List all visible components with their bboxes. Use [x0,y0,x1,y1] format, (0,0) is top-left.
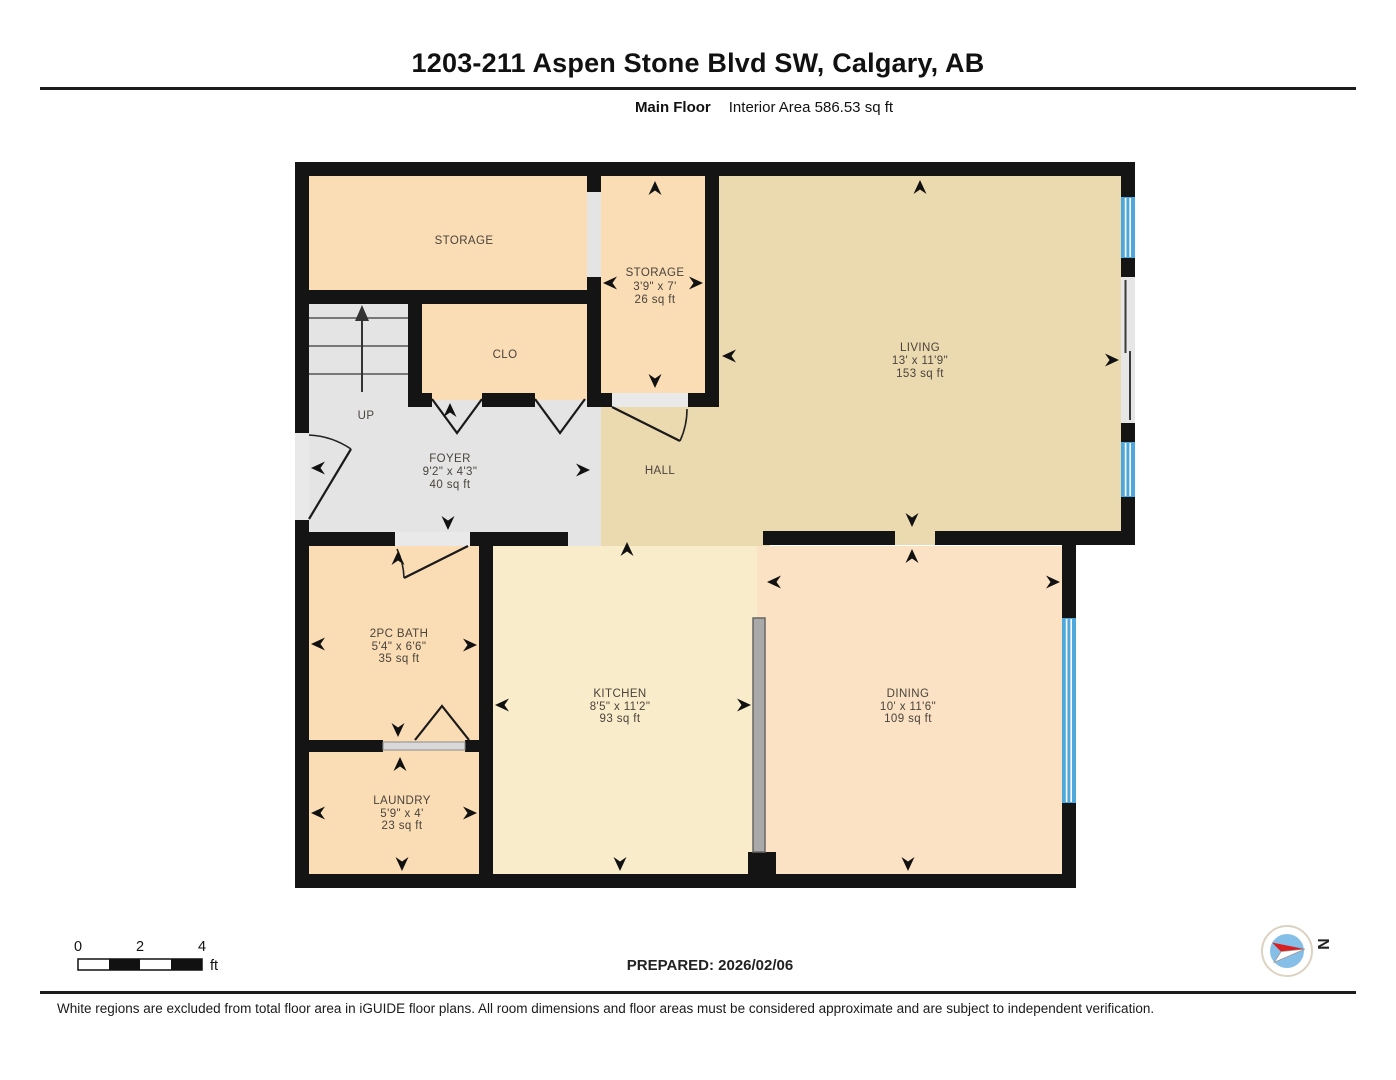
living-patio-slider [1121,277,1135,423]
storage2-label: STORAGE [626,267,685,279]
dining-dims: 10' x 11'6" [880,701,936,713]
storage2-dims: 3'9" x 7' [633,281,676,293]
disclaimer-text: White regions are excluded from total fl… [57,1001,1356,1016]
stairs-up-label: UP [358,410,375,422]
floorplan-page: 1203-211 Aspen Stone Blvd SW, Calgary, A… [0,0,1396,1080]
dining-label: DINING [887,688,930,700]
bath-door-opening [395,532,470,546]
compass-north-label: N [1314,938,1331,950]
floorplan-drawing: STORAGE STORAGE 3'9" x 7' 26 sq ft CLO U… [0,0,1396,1080]
kitchen-dims: 8'5" x 11'2" [590,701,651,713]
kitchen-area: 93 sq ft [600,713,641,725]
foyer-dims: 9'2" x 4'3" [423,466,478,478]
hall-floor [594,397,770,546]
prepared-date: PREPARED: 2026/02/06 [0,957,1396,974]
storage-pass-opening [587,192,601,277]
footer-divider [40,991,1356,994]
storage1-floor [302,168,594,298]
closet-label: CLO [493,349,518,361]
living-window-lower [1121,442,1135,497]
living-dining-opening [895,531,935,545]
laundry-dims: 5'9" x 4' [380,808,423,820]
laundry-area: 23 sq ft [382,820,423,832]
kitchen-label: KITCHEN [593,688,646,700]
dining-area: 109 sq ft [884,713,932,725]
storage1-label: STORAGE [435,235,494,247]
dining-window [1062,618,1076,803]
laundry-label: LAUNDRY [373,795,431,807]
living-window-upper [1121,197,1135,258]
bath-area: 35 sq ft [379,653,420,665]
kitchen-dining-partition [753,618,765,852]
laundry-door-sill [383,742,465,750]
foyer-area: 40 sq ft [430,479,471,491]
living-area: 153 sq ft [896,368,944,380]
storage2-door-opening [612,393,688,407]
scale-tick-4: 4 [198,939,206,955]
scale-tick-0: 0 [74,939,82,955]
bath-label: 2PC BATH [370,628,429,640]
storage2-area: 26 sq ft [635,294,676,306]
living-label: LIVING [900,342,940,354]
entry-door-opening [295,433,309,520]
living-dims: 13' x 11'9" [892,355,948,367]
bath-dims: 5'4" x 6'6" [372,641,427,653]
scale-tick-2: 2 [136,939,144,955]
foyer-label: FOYER [429,453,471,465]
hall-label: HALL [645,465,676,477]
